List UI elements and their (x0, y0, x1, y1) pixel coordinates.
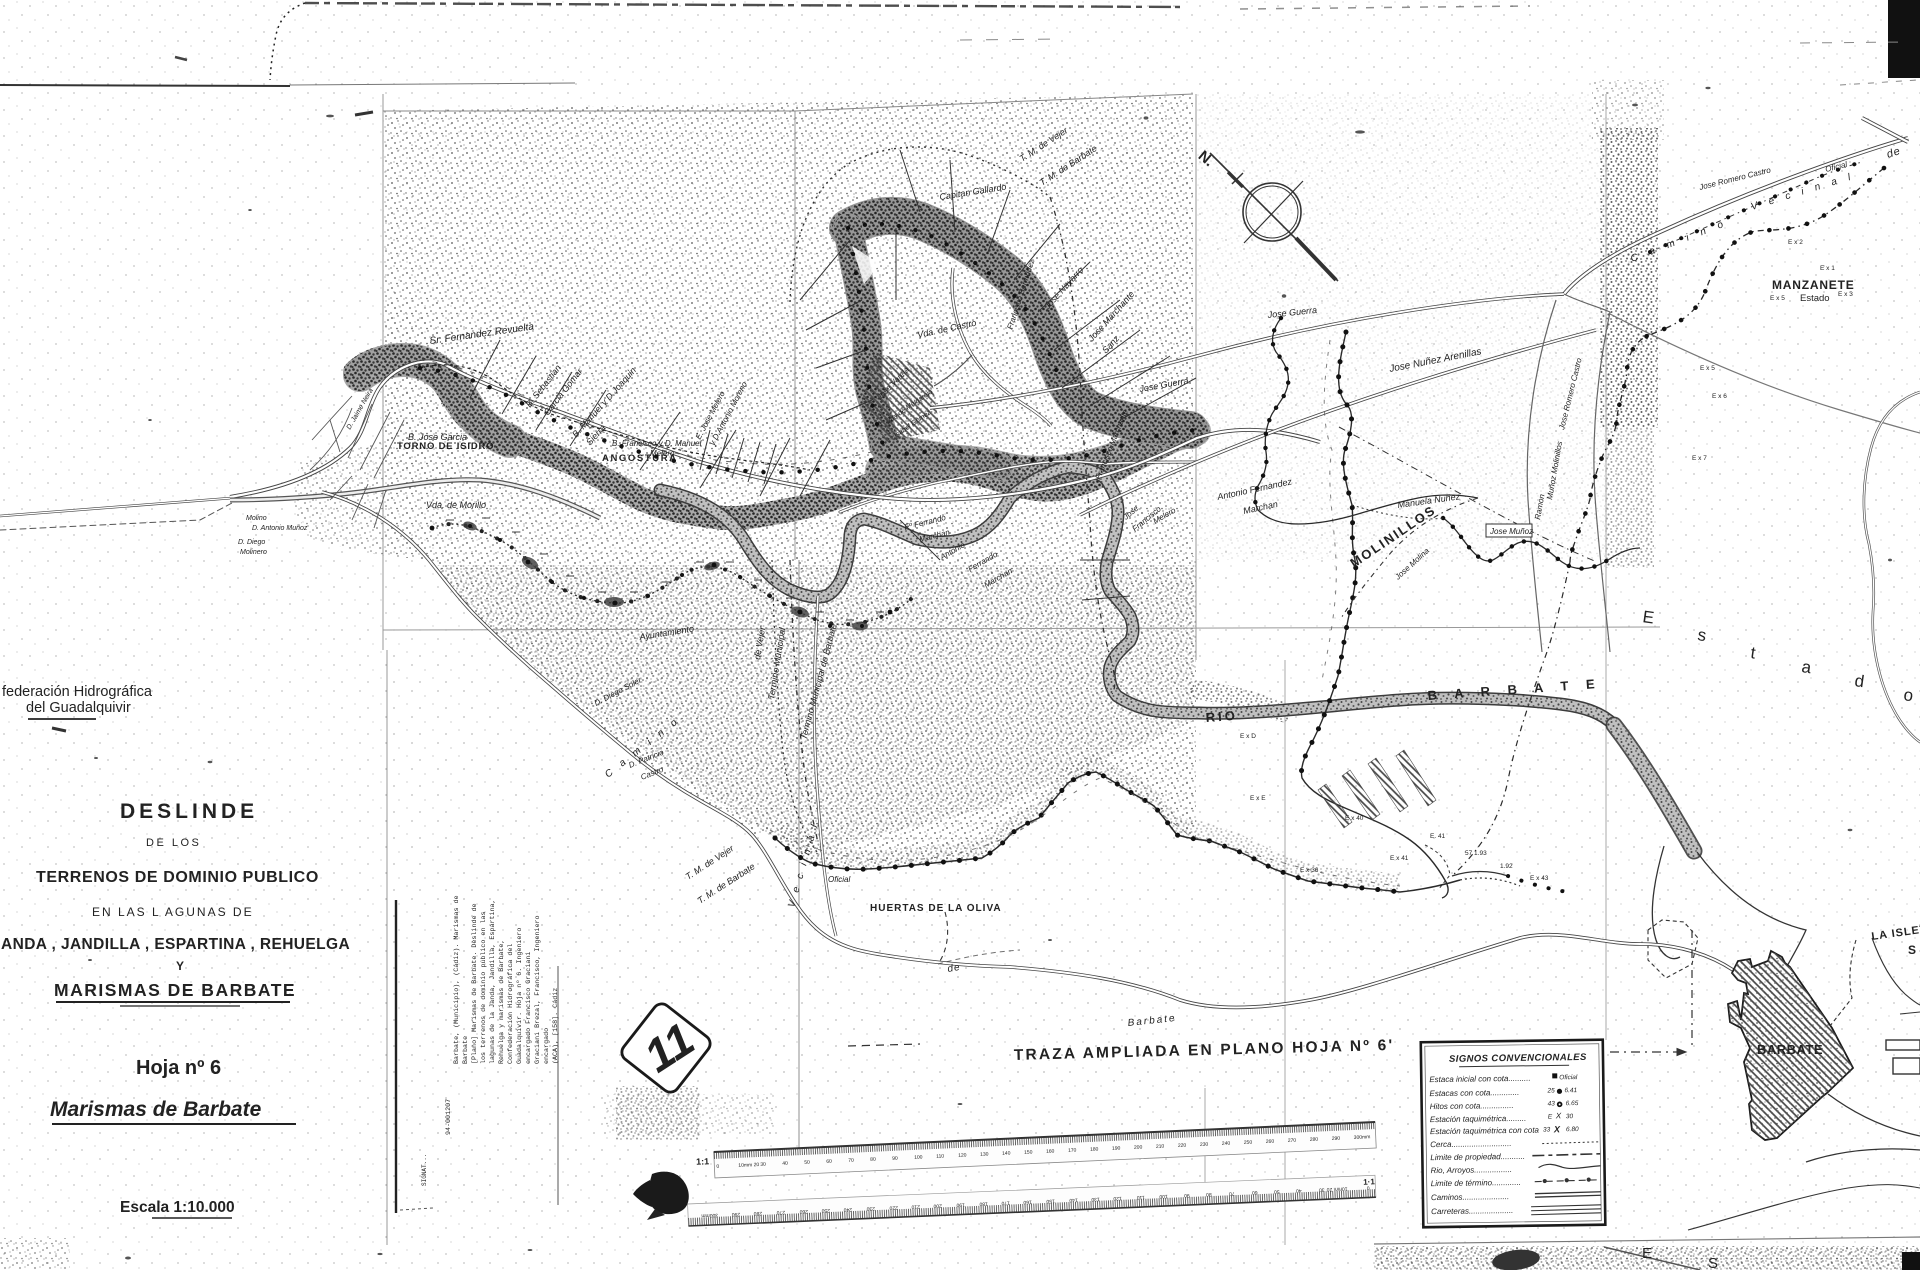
svg-text:Graciani Brezal, Francisco, In: Graciani Brezal, Francisco, Ingeniero (534, 916, 542, 1065)
svg-text:Molinero: Molinero (240, 549, 267, 556)
svg-text:230: 230 (1200, 1142, 1209, 1148)
svg-text:E: E (1642, 1245, 1652, 1262)
svg-text:200: 200 (1134, 1145, 1143, 1151)
svg-text:120: 120 (1113, 1195, 1122, 1201)
svg-text:260: 260 (1266, 1139, 1275, 1145)
svg-text:6.41: 6.41 (1564, 1087, 1577, 1094)
svg-text:270: 270 (776, 1209, 785, 1215)
svg-text:1·1: 1·1 (1363, 1177, 1375, 1186)
svg-text:94-001207: 94-001207 (445, 1099, 453, 1135)
svg-text:6.80: 6.80 (1566, 1126, 1579, 1133)
svg-text:270: 270 (1288, 1138, 1297, 1144)
svg-text:110: 110 (936, 1154, 944, 1160)
svg-text:de: de (947, 962, 962, 975)
svg-text:Molino: Molino (246, 515, 267, 522)
svg-text:250: 250 (821, 1207, 830, 1213)
svg-text:190: 190 (956, 1201, 965, 1207)
svg-text:E x 5: E x 5 (1700, 365, 1715, 372)
svg-text:160: 160 (1023, 1199, 1032, 1205)
svg-text:Cerca.........................: Cerca........................... (1430, 1139, 1511, 1149)
svg-text:Limite de propiedad...........: Limite de propiedad........... (1430, 1152, 1525, 1162)
svg-text:140: 140 (1069, 1197, 1078, 1203)
svg-text:30: 30 (760, 1162, 766, 1168)
svg-text:Caminos.....................: Caminos..................... (1431, 1192, 1509, 1202)
svg-text:E x 7: E x 7 (1692, 455, 1707, 462)
svg-text:B. Francisco y D. Manuel: B. Francisco y D. Manuel (612, 439, 702, 448)
svg-text:60: 60 (826, 1159, 832, 1165)
svg-text:E x 3: E x 3 (1838, 291, 1853, 298)
svg-text:100: 100 (1159, 1193, 1168, 1199)
svg-text:SIGNAT...: SIGNAT... (421, 1154, 428, 1186)
svg-text:HUERTAS DE LA OLIVA: HUERTAS DE LA OLIVA (870, 903, 1002, 914)
svg-text:150: 150 (1046, 1198, 1055, 1204)
svg-text:Hoja nº 6: Hoja nº 6 (136, 1057, 221, 1079)
svg-text:280: 280 (753, 1210, 762, 1216)
svg-text:D. Diego: D. Diego (238, 539, 265, 546)
svg-text:E x E: E x E (1250, 795, 1266, 802)
svg-text:240: 240 (843, 1206, 852, 1212)
svg-text:E x 1: E x 1 (1820, 265, 1835, 272)
svg-text:X: X (1553, 1124, 1561, 1134)
svg-text:federación Hidrográfica: federación Hidrográfica (2, 684, 153, 700)
svg-text:[Plano] Marismas de Barbate. D: [Plano] Marismas de Barbate. Deslinde de (471, 903, 479, 1064)
svg-text:BARBATE: BARBATE (1757, 1042, 1823, 1057)
svg-text:EN LAS L AGUNAS DE: EN LAS L AGUNAS DE (92, 905, 254, 919)
svg-text:los terrenos de dominio públic: los terrenos de dominio público en las (480, 912, 488, 1065)
svg-text:RIO: RIO (1205, 708, 1238, 725)
svg-text:E x 41: E x 41 (1390, 855, 1409, 862)
svg-text:10mm 20: 10mm 20 (738, 1162, 759, 1169)
svg-text:TERRENOS DE DOMINIO PUBLICO: TERRENOS DE DOMINIO PUBLICO (36, 869, 319, 886)
svg-text:290: 290 (1332, 1136, 1341, 1142)
svg-text:Estación taquimétrica.........: Estación taquimétrica......... (1430, 1114, 1527, 1124)
svg-text:170: 170 (1068, 1148, 1077, 1154)
svg-text:150: 150 (1024, 1150, 1033, 1156)
svg-text:Rehuelga y marismas de Barbate: Rehuelga y marismas de Barbate, (498, 940, 506, 1064)
svg-text:40: 40 (1296, 1187, 1302, 1193)
svg-text:Hitos con cota...............: Hitos con cota............... (1430, 1101, 1514, 1111)
svg-text:E x 6: E x 6 (1712, 393, 1727, 400)
svg-text:Limite de término.............: Limite de término............. (1431, 1178, 1521, 1188)
svg-text:70: 70 (1229, 1190, 1235, 1196)
svg-text:Oficial: Oficial (828, 875, 850, 884)
svg-text:110: 110 (1136, 1194, 1144, 1200)
svg-text:Oficial: Oficial (1559, 1074, 1578, 1081)
svg-text:30: 30 (1319, 1186, 1325, 1192)
svg-text:33: 33 (1543, 1126, 1551, 1133)
svg-text:Barbate: Barbate (462, 1036, 470, 1064)
svg-text:140: 140 (1002, 1151, 1011, 1157)
svg-text:TORNO DE ISIDRO: TORNO DE ISIDRO (397, 441, 494, 452)
svg-text:43: 43 (1548, 1100, 1556, 1107)
svg-text:90: 90 (892, 1156, 898, 1162)
svg-text:DE LOS: DE LOS (146, 837, 201, 849)
svg-text:MARISMAS DE BARBATE: MARISMAS DE BARBATE (54, 980, 296, 1000)
svg-text:S: S (1708, 1255, 1718, 1270)
svg-text:Carreteras....................: Carreteras.................... (1431, 1206, 1513, 1216)
svg-text:JANDA , JANDILLA , ESPARTINA ,: JANDA , JANDILLA , ESPARTINA , REHUELGA (0, 936, 350, 953)
svg-text:200: 200 (933, 1202, 942, 1208)
svg-text:Rio, Arroyos.................: Rio, Arroyos................. (1430, 1165, 1512, 1175)
svg-text:60: 60 (1252, 1189, 1258, 1195)
svg-text:80: 80 (1206, 1191, 1212, 1197)
svg-text:Estacas con cota.............: Estacas con cota............. (1429, 1088, 1519, 1098)
svg-text:290: 290 (731, 1211, 740, 1217)
svg-text:190: 190 (1112, 1146, 1121, 1152)
svg-text:S: S (1908, 943, 1916, 957)
svg-text:230: 230 (866, 1205, 875, 1211)
svg-text:100: 100 (914, 1155, 923, 1161)
svg-text:del Guadalquivir: del Guadalquivir (26, 700, 131, 716)
svg-text:280: 280 (1310, 1137, 1319, 1143)
svg-text:210: 210 (1156, 1144, 1165, 1150)
svg-text:Marismas de Barbate: Marismas de Barbate (50, 1098, 262, 1121)
svg-text:25: 25 (1546, 1087, 1555, 1094)
svg-text:D. Antonio Muñoz: D. Antonio Muñoz (252, 525, 308, 532)
svg-text:70: 70 (848, 1158, 854, 1164)
svg-text:300mm: 300mm (701, 1212, 718, 1219)
svg-text:220: 220 (1178, 1143, 1187, 1149)
svg-text:E x 43: E x 43 (1530, 875, 1549, 882)
svg-text:Jose Muñoz: Jose Muñoz (1489, 527, 1533, 536)
svg-text:210: 210 (911, 1203, 920, 1209)
svg-text:(ACA), [158]. Cádiz: (ACA), [158]. Cádiz (552, 988, 560, 1064)
svg-text:130: 130 (980, 1152, 989, 1158)
svg-text:120: 120 (958, 1153, 967, 1159)
svg-text:E x 5: E x 5 (1770, 295, 1785, 302)
svg-text:260: 260 (799, 1208, 808, 1214)
svg-text:SIGNOS CONVENCIONALES: SIGNOS CONVENCIONALES (1449, 1052, 1587, 1065)
svg-text:30: 30 (1566, 1113, 1574, 1120)
svg-text:DESLINDE: DESLINDE (120, 800, 258, 823)
svg-text:Estado: Estado (1800, 293, 1830, 304)
svg-text:250: 250 (1244, 1140, 1253, 1146)
svg-text:E x 2: E x 2 (1788, 239, 1803, 246)
svg-text:220: 220 (889, 1204, 898, 1210)
svg-text:40: 40 (782, 1161, 788, 1167)
svg-text:Estaca inicial con cota.......: Estaca inicial con cota.......... (1429, 1074, 1531, 1084)
svg-text:E x D: E x D (1240, 733, 1256, 740)
svg-text:encargado: encargado (543, 1028, 551, 1064)
svg-text:Escala 1:10.000: Escala 1:10.000 (120, 1199, 235, 1216)
svg-text:180: 180 (1090, 1147, 1099, 1153)
svg-text:MANZANETE: MANZANETE (1772, 278, 1855, 292)
svg-text:ANGOSTURA: ANGOSTURA (602, 453, 678, 464)
svg-text:300mm: 300mm (1354, 1134, 1371, 1141)
svg-text:Barbate, (Municipio), (Cádiz).: Barbate, (Municipio), (Cádiz). Marismas … (453, 895, 461, 1064)
svg-text:50: 50 (1274, 1188, 1280, 1194)
svg-text:encargado Francisco Graciani: encargado Francisco Graciani (525, 952, 533, 1064)
svg-text:1:1: 1:1 (696, 1156, 709, 1167)
svg-text:E. 41: E. 41 (1430, 833, 1446, 840)
svg-text:10mm 20: 10mm 20 (1326, 1185, 1347, 1192)
svg-text:X: X (1555, 1111, 1562, 1120)
svg-text:6.65: 6.65 (1566, 1100, 1579, 1107)
svg-text:Confederación Hidrográfica del: Confederación Hidrográfica del (507, 944, 515, 1064)
svg-text:50: 50 (804, 1160, 810, 1166)
svg-text:180: 180 (979, 1200, 988, 1206)
svg-text:57 1.93: 57 1.93 (1465, 850, 1487, 857)
svg-text:130: 130 (1091, 1196, 1100, 1202)
svg-text:80: 80 (870, 1157, 876, 1163)
svg-text:lagunas de la Janda, Jandilla,: lagunas de la Janda, Jandilla, Espartina… (489, 899, 497, 1064)
svg-text:90: 90 (1184, 1192, 1190, 1198)
svg-text:170: 170 (1001, 1200, 1010, 1206)
svg-text:1.92: 1.92 (1500, 863, 1513, 870)
svg-text:E x 40: E x 40 (1345, 815, 1364, 822)
svg-text:E x 36: E x 36 (1300, 867, 1319, 874)
svg-text:Vda. de Morillo: Vda. de Morillo (426, 500, 486, 510)
svg-text:240: 240 (1222, 1141, 1231, 1147)
svg-text:Estación taquimétrica con cota: Estación taquimétrica con cota (1430, 1126, 1540, 1137)
svg-text:E: E (1548, 1113, 1553, 1120)
svg-text:Guadalquivir. Hoja nº 6. Ingen: Guadalquivir. Hoja nº 6. Ingeniero (516, 928, 524, 1064)
svg-text:160: 160 (1046, 1149, 1055, 1155)
svg-text:0: 0 (716, 1164, 719, 1170)
svg-text:Y: Y (176, 959, 184, 973)
